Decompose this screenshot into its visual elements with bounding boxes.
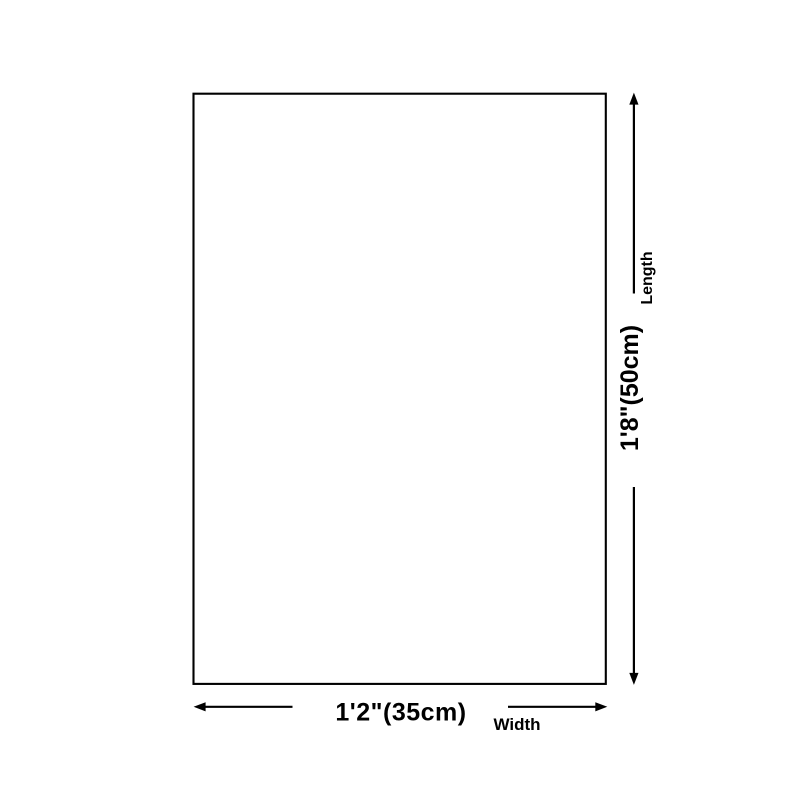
svg-text:Width: Width	[493, 715, 540, 734]
svg-text:1'2"(35cm): 1'2"(35cm)	[335, 699, 466, 727]
svg-text:1'8"(50cm): 1'8"(50cm)	[616, 325, 644, 451]
svg-text:Length: Length	[639, 251, 656, 304]
